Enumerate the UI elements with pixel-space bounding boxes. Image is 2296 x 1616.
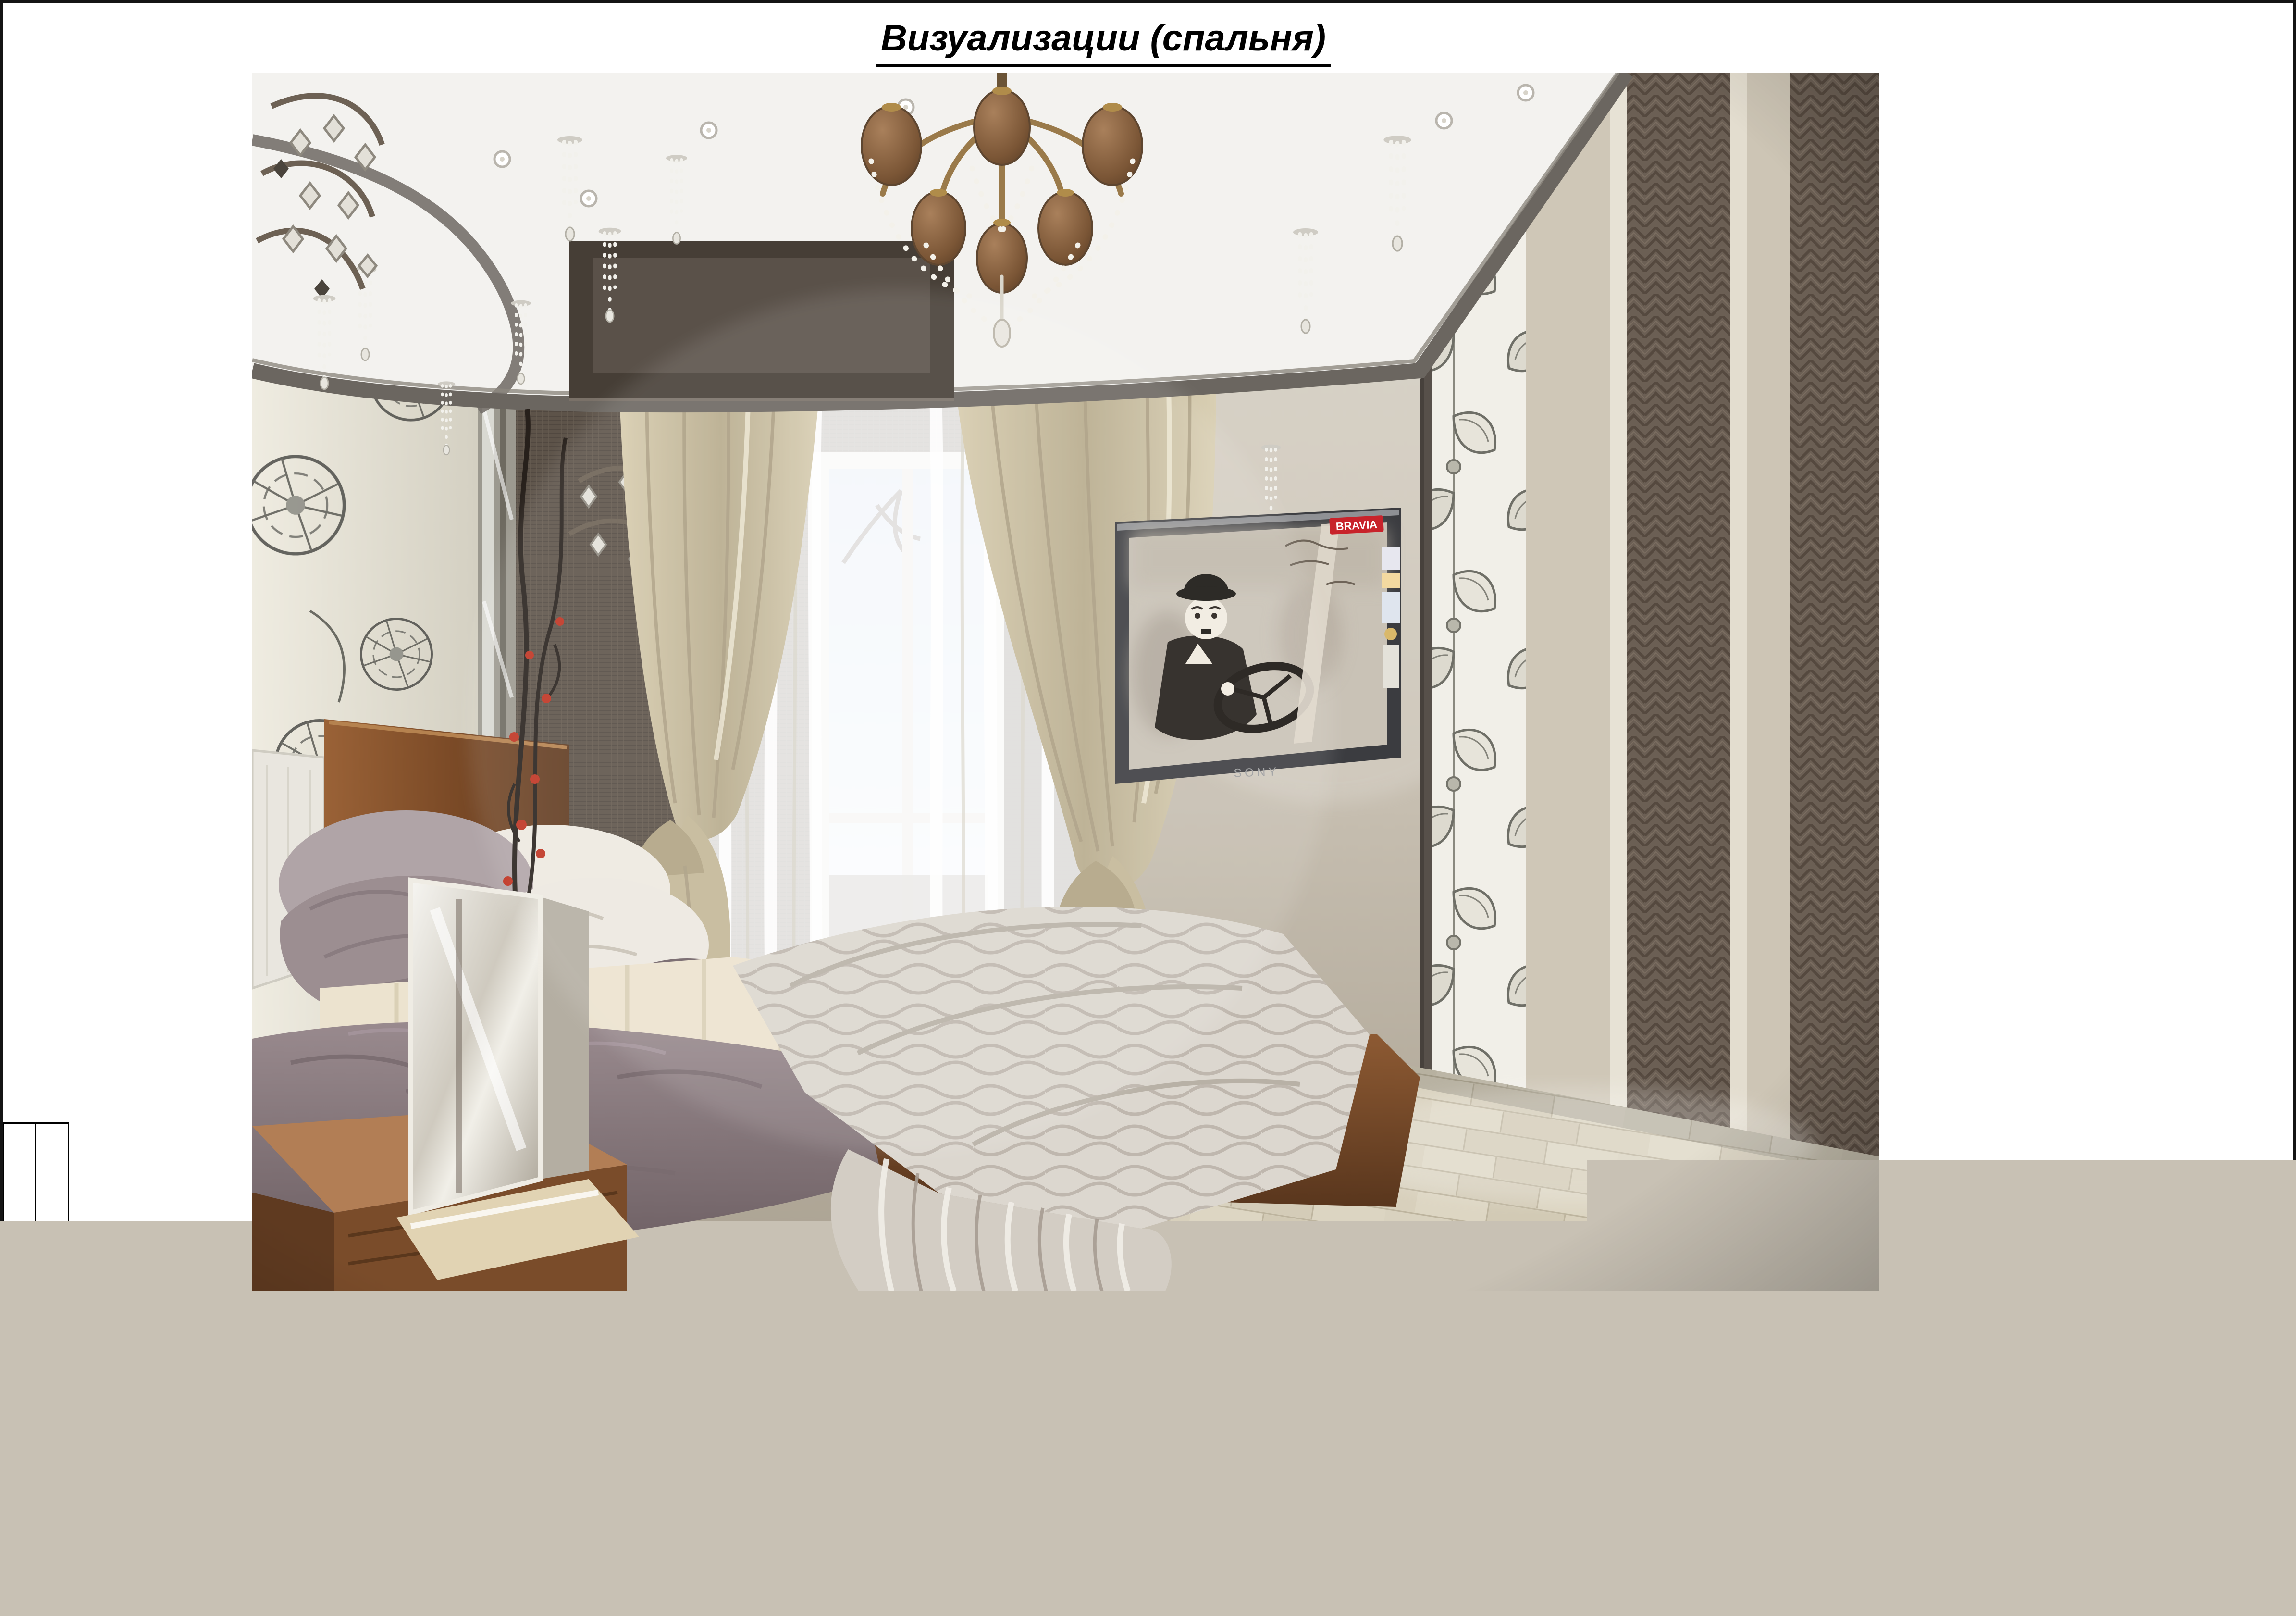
col-header-izm: Изм. bbox=[1288, 1413, 1325, 1441]
sheet-name: Визуализации. Спальня bbox=[1646, 1442, 2024, 1614]
grid-line bbox=[1288, 1582, 1644, 1583]
grid-line bbox=[4, 1257, 68, 1258]
sheets-value: 30 bbox=[2209, 1475, 2296, 1533]
doc-code: 12.09.2011 ДП bbox=[1646, 1307, 2296, 1349]
sheets-header: Листов bbox=[2209, 1442, 2296, 1474]
left-margin-strip: Подпись и дата Изм. № пол. bbox=[3, 1122, 69, 1612]
bedroom-render: BRAVIA SONY bbox=[252, 73, 1879, 1291]
sheet-header: Лист bbox=[2119, 1442, 2208, 1474]
strip-label-signature-date: Подпись и дата bbox=[4, 1259, 35, 1473]
studio-name-line2: “ArtVision” bbox=[2026, 1573, 2296, 1602]
grid-line bbox=[1502, 1442, 1503, 1614]
col-header-podpis: Подпись bbox=[1503, 1413, 1590, 1441]
doc-type: ДИЗАЙН- ПРОЕКТ bbox=[1646, 1350, 2296, 1441]
grid-line bbox=[1288, 1321, 1644, 1322]
date-designer: 07.12 bbox=[1591, 1498, 1644, 1526]
date-checked: 07.12 bbox=[1591, 1526, 1644, 1558]
col-header-koluch: Кол.уч bbox=[1326, 1413, 1386, 1441]
grid-line bbox=[4, 1474, 68, 1475]
col-header-list: Лист bbox=[1387, 1413, 1444, 1441]
sheet-value: 24 bbox=[2119, 1475, 2208, 1533]
stage-header: Стадия bbox=[2026, 1442, 2118, 1474]
grid-line bbox=[1288, 1467, 1644, 1468]
col-header-ndok: №док bbox=[1444, 1413, 1502, 1441]
design-sheet: Визуализации (спальня) bbox=[0, 0, 2296, 1616]
studio-name-line1: Студия дизайна bbox=[2026, 1534, 2296, 1573]
page-title: Визуализации (спальня) bbox=[876, 17, 1331, 67]
vignette bbox=[252, 73, 1879, 1291]
role-checked: Проверил bbox=[1290, 1526, 1387, 1558]
name-checked: Радаев А. bbox=[1389, 1526, 1501, 1558]
stage-value: П bbox=[2026, 1475, 2118, 1533]
col-header-data: Дата bbox=[1591, 1413, 1644, 1441]
grid-line bbox=[1288, 1558, 1644, 1559]
strip-label-inv-number: Изм. № пол. bbox=[4, 1476, 35, 1609]
role-designer: Дизайнер bbox=[1290, 1498, 1387, 1526]
grid-line bbox=[1288, 1381, 1644, 1382]
grid-line bbox=[35, 1124, 36, 1610]
bedroom-scene: BRAVIA SONY bbox=[252, 73, 1879, 1291]
name-designer: Лемента Д. bbox=[1389, 1498, 1501, 1526]
title-block: Изм. Кол.уч Лист №док Подпись Дата Дизай… bbox=[1286, 1305, 2296, 1616]
